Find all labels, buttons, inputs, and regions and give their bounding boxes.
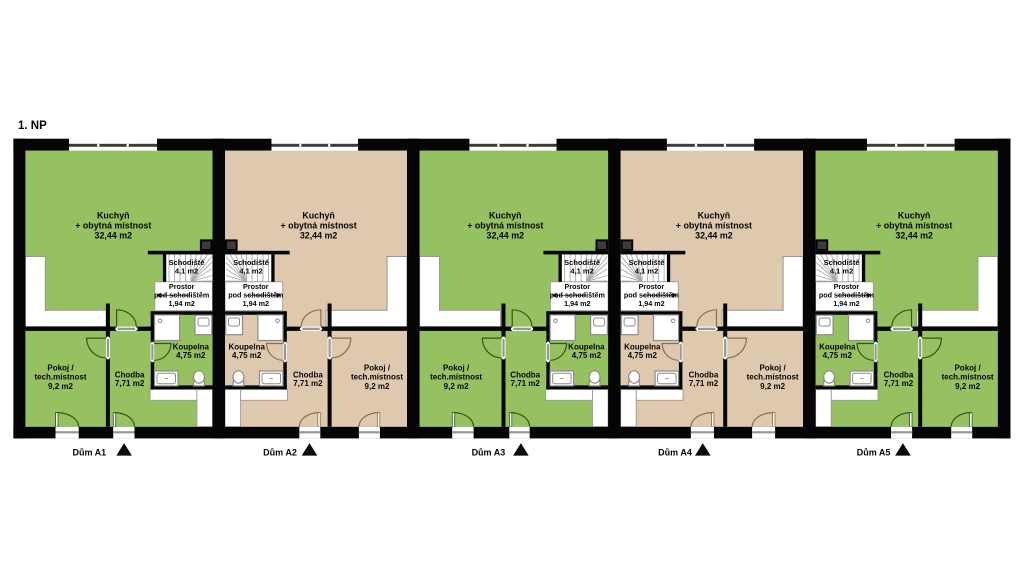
svg-text:tech.místnost: tech.místnost (34, 373, 86, 382)
svg-text:tech.místnost: tech.místnost (351, 373, 403, 382)
svg-text:Dům A5: Dům A5 (857, 447, 891, 457)
svg-text:Chodba: Chodba (293, 370, 323, 379)
svg-text:+ obytná místnost: + obytná místnost (467, 221, 543, 231)
svg-text:Chodba: Chodba (510, 370, 540, 379)
svg-text:32,44 m2: 32,44 m2 (487, 230, 525, 240)
svg-text:32,44 m2: 32,44 m2 (300, 230, 338, 240)
svg-text:9,2 m2: 9,2 m2 (365, 382, 390, 391)
svg-text:32,44 m2: 32,44 m2 (695, 230, 733, 240)
svg-text:1,94 m2: 1,94 m2 (833, 299, 859, 308)
svg-text:9,2 m2: 9,2 m2 (444, 382, 469, 391)
svg-text:4,1 m2: 4,1 m2 (635, 266, 658, 275)
svg-text:1,94 m2: 1,94 m2 (169, 299, 195, 308)
svg-text:4,1 m2: 4,1 m2 (239, 266, 262, 275)
svg-text:Kuchyň: Kuchyň (97, 211, 130, 221)
svg-text:1,94 m2: 1,94 m2 (564, 299, 590, 308)
svg-text:1. NP: 1. NP (18, 120, 47, 132)
svg-text:Kuchyň: Kuchyň (302, 211, 335, 221)
svg-text:1,94 m2: 1,94 m2 (638, 299, 664, 308)
svg-text:tech.místnost: tech.místnost (430, 373, 482, 382)
svg-text:7,71 m2: 7,71 m2 (115, 379, 145, 388)
svg-text:Chodba: Chodba (884, 370, 914, 379)
svg-text:Pokoj /: Pokoj / (47, 363, 74, 372)
svg-text:Kuchyň: Kuchyň (698, 211, 731, 221)
svg-text:4,75 m2: 4,75 m2 (823, 351, 853, 360)
svg-text:7,71 m2: 7,71 m2 (293, 379, 323, 388)
svg-text:Pokoj /: Pokoj / (954, 363, 981, 372)
svg-text:+ obytná místnost: + obytná místnost (281, 221, 357, 231)
svg-text:+ obytná místnost: + obytná místnost (75, 221, 151, 231)
svg-text:tech.místnost: tech.místnost (747, 373, 799, 382)
svg-text:Pokoj /: Pokoj / (443, 363, 470, 372)
svg-text:Dům A4: Dům A4 (658, 447, 692, 457)
svg-text:Chodba: Chodba (689, 370, 719, 379)
svg-text:+ obytná místnost: + obytná místnost (876, 221, 952, 231)
svg-text:1,94 m2: 1,94 m2 (243, 299, 269, 308)
svg-text:7,71 m2: 7,71 m2 (884, 379, 914, 388)
svg-text:4,1 m2: 4,1 m2 (570, 266, 593, 275)
svg-text:+ obytná místnost: + obytná místnost (676, 221, 752, 231)
svg-text:4,75 m2: 4,75 m2 (176, 351, 206, 360)
svg-text:7,71 m2: 7,71 m2 (511, 379, 541, 388)
svg-text:Dům A2: Dům A2 (263, 447, 297, 457)
svg-text:4,1 m2: 4,1 m2 (830, 266, 853, 275)
svg-text:4,1 m2: 4,1 m2 (175, 266, 198, 275)
svg-text:4,75 m2: 4,75 m2 (572, 351, 602, 360)
svg-text:Chodba: Chodba (115, 370, 145, 379)
svg-text:4,75 m2: 4,75 m2 (628, 351, 658, 360)
svg-text:Pokoj /: Pokoj / (364, 363, 391, 372)
svg-text:tech.místnost: tech.místnost (942, 373, 994, 382)
svg-text:9,2 m2: 9,2 m2 (48, 382, 73, 391)
svg-text:Pokoj /: Pokoj / (759, 363, 786, 372)
svg-text:7,71 m2: 7,71 m2 (689, 379, 719, 388)
svg-text:32,44 m2: 32,44 m2 (895, 230, 933, 240)
svg-text:Kuchyň: Kuchyň (898, 211, 931, 221)
svg-text:Kuchyň: Kuchyň (489, 211, 522, 221)
svg-text:Dům A3: Dům A3 (472, 447, 506, 457)
svg-text:32,44 m2: 32,44 m2 (95, 230, 133, 240)
svg-text:Dům A1: Dům A1 (72, 447, 106, 457)
svg-text:9,2 m2: 9,2 m2 (760, 382, 785, 391)
svg-text:4,75 m2: 4,75 m2 (232, 351, 262, 360)
svg-text:9,2 m2: 9,2 m2 (955, 382, 980, 391)
